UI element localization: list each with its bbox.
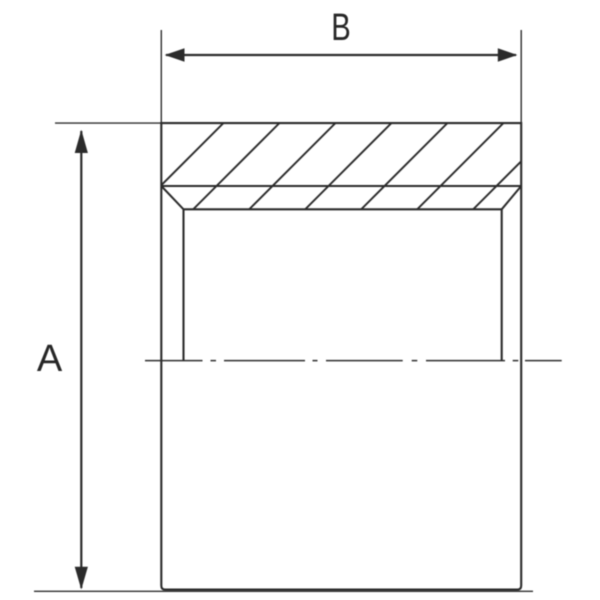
svg-text:A: A bbox=[37, 338, 63, 380]
svg-text:B: B bbox=[331, 7, 351, 49]
